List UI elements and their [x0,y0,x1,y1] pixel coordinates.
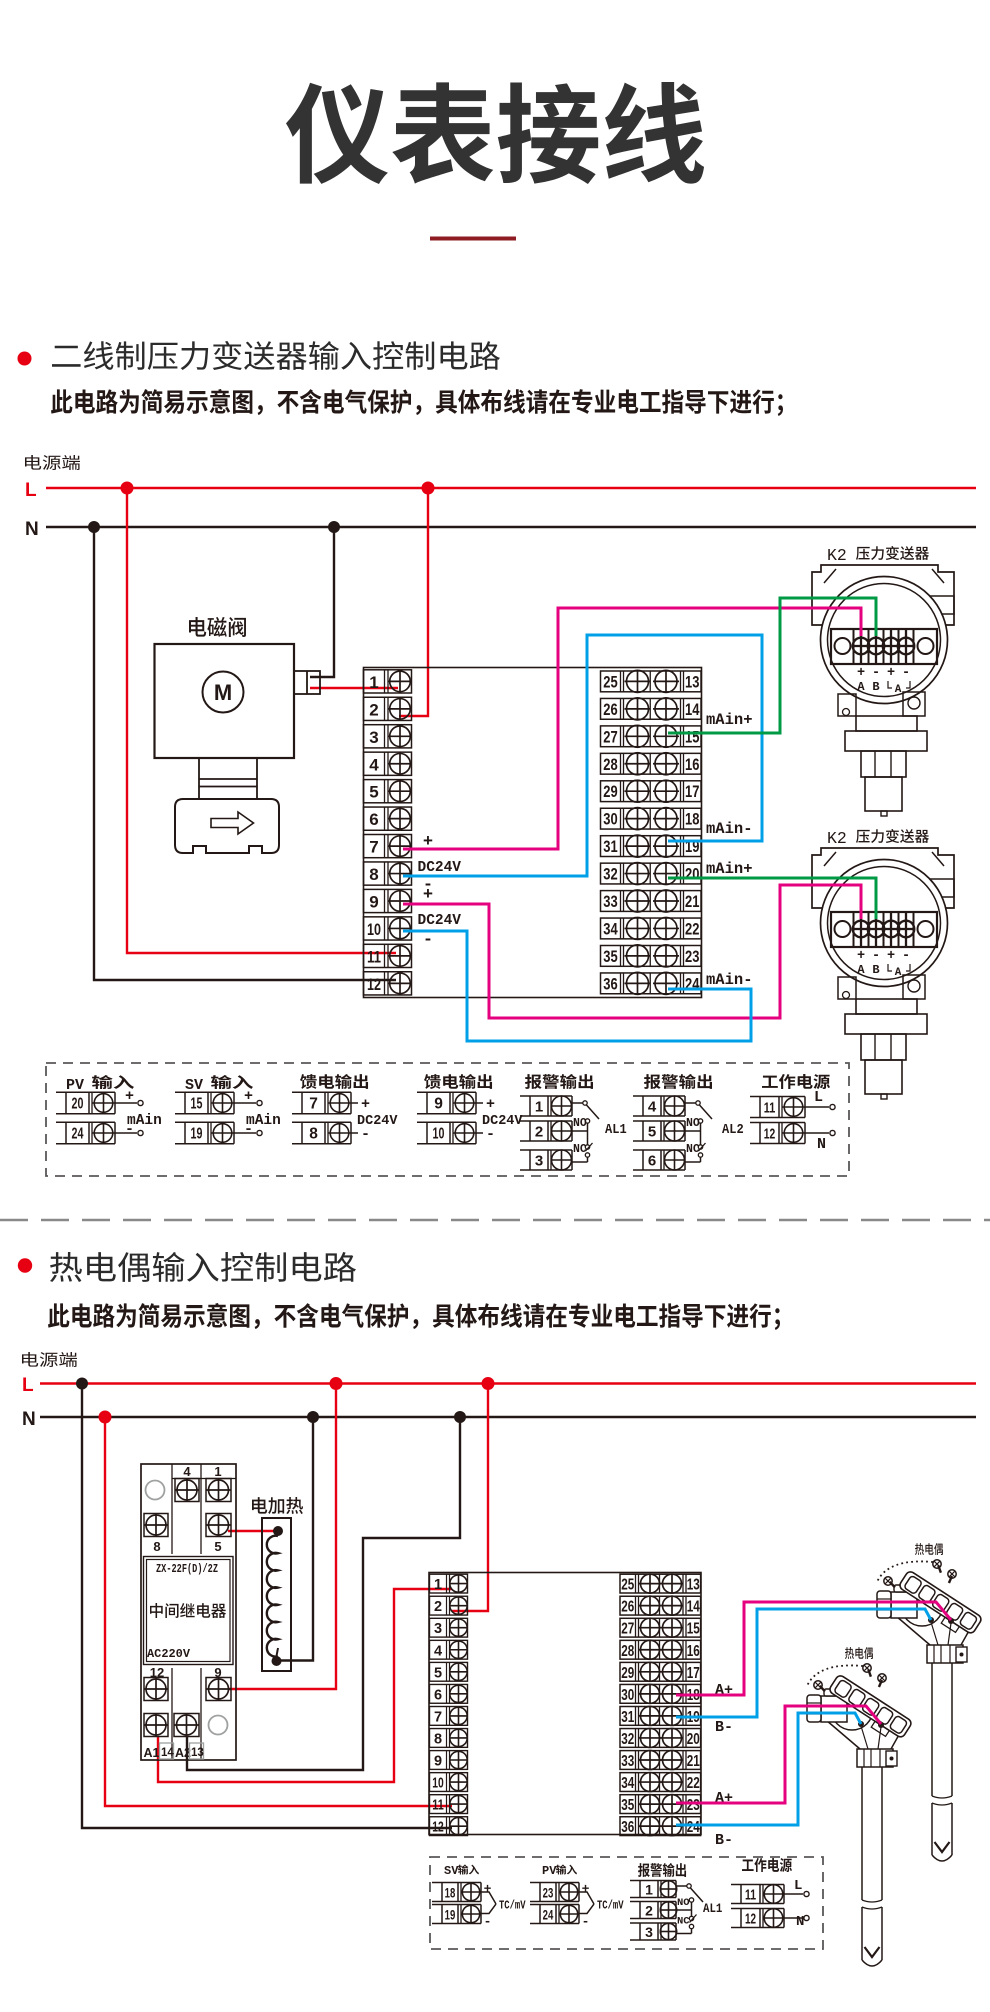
svg-text:19: 19 [191,1126,203,1143]
svg-text:mAin-: mAin- [706,820,753,838]
svg-text:15: 15 [685,727,699,746]
svg-text:12: 12 [432,1820,444,1836]
svg-text:3: 3 [535,1153,543,1170]
svg-text:mAin: mAin [127,1113,162,1129]
svg-text:4: 4 [369,755,379,774]
svg-text:N: N [796,1914,804,1930]
svg-text:5: 5 [369,783,378,802]
svg-text:SV: SV [185,1077,203,1094]
svg-text:12: 12 [764,1126,775,1143]
svg-text:23: 23 [685,947,699,966]
svg-text:22: 22 [685,919,699,938]
svg-text:3: 3 [369,728,378,747]
svg-text:20: 20 [685,865,699,884]
svg-text:21: 21 [685,892,699,911]
svg-text:NC: NC [677,1916,690,1928]
svg-text:N: N [25,519,39,540]
svg-text:33: 33 [603,892,617,911]
svg-text:34: 34 [621,1775,634,1792]
svg-text:+: + [887,666,895,681]
svg-text:29: 29 [603,782,617,801]
svg-text:A: A [857,680,865,694]
svg-text:A: A [857,963,865,977]
svg-text:13: 13 [685,672,699,691]
svg-text:1: 1 [369,673,378,692]
svg-text:4: 4 [434,1643,442,1659]
svg-text:+: + [125,1088,134,1105]
svg-text:7: 7 [434,1709,442,1725]
svg-text:NO: NO [686,1117,700,1130]
svg-text:34: 34 [603,919,618,938]
svg-text:8: 8 [309,1126,318,1143]
svg-text:10: 10 [433,1126,445,1143]
svg-text:3: 3 [645,1924,653,1940]
svg-text:32: 32 [621,1731,634,1748]
svg-text:27: 27 [621,1621,634,1638]
svg-text:13: 13 [687,1577,700,1594]
svg-text:mAin+: mAin+ [706,860,753,878]
svg-text:36: 36 [621,1819,634,1836]
svg-text:20: 20 [687,1731,700,1748]
svg-text:35: 35 [603,947,617,966]
svg-text:7: 7 [309,1096,318,1113]
svg-text:25: 25 [603,672,617,691]
svg-text:-: - [423,931,433,950]
svg-text:B: B [872,680,879,694]
svg-text:1: 1 [645,1882,653,1898]
svg-text:mAin: mAin [246,1113,281,1129]
svg-text:12: 12 [367,975,381,994]
svg-text:14: 14 [685,700,700,719]
svg-text:L: L [25,480,37,501]
svg-text:-: - [872,666,880,681]
svg-text:21: 21 [687,1753,700,1770]
svg-text:17: 17 [685,782,699,801]
svg-text:24: 24 [543,1907,554,1923]
svg-text:PV: PV [542,1864,557,1878]
svg-text:+: + [484,1882,492,1897]
svg-text:N: N [22,1409,36,1430]
svg-text:NO: NO [677,1897,690,1909]
svg-text:AL2: AL2 [722,1122,744,1138]
svg-text:B: B [872,963,879,977]
svg-text:A: A [895,684,902,696]
svg-text:6: 6 [648,1153,656,1170]
svg-text:30: 30 [603,810,617,829]
svg-text:11: 11 [432,1798,444,1814]
svg-text:26: 26 [621,1599,634,1616]
svg-text:PV: PV [66,1077,84,1094]
svg-text:M: M [214,680,232,705]
svg-text:9: 9 [369,893,378,912]
svg-text:DC24V: DC24V [482,1114,523,1129]
svg-text:L: L [22,1375,34,1396]
svg-text:+: + [857,949,865,964]
svg-text:4: 4 [183,1464,191,1479]
svg-text:11: 11 [367,947,381,966]
svg-text:23: 23 [543,1885,554,1901]
svg-text:4: 4 [648,1099,657,1116]
svg-text:1: 1 [214,1464,221,1479]
svg-text:1: 1 [535,1099,543,1116]
svg-text:L: L [794,1878,802,1894]
svg-text:DC24V: DC24V [357,1114,398,1129]
svg-text:6: 6 [434,1687,442,1703]
svg-text:8: 8 [153,1539,160,1554]
svg-text:K2: K2 [827,829,847,848]
svg-text:28: 28 [603,755,617,774]
svg-text:18: 18 [685,810,699,829]
svg-text:8: 8 [369,865,378,884]
svg-text:14: 14 [161,1747,174,1759]
svg-text:19: 19 [445,1907,456,1923]
svg-text:B-: B- [715,1719,733,1736]
svg-text:NO: NO [573,1117,587,1130]
svg-text:5: 5 [214,1539,221,1554]
svg-text:SV: SV [444,1864,459,1878]
svg-text:2: 2 [645,1903,653,1919]
svg-text:31: 31 [603,837,617,856]
svg-text:5: 5 [648,1124,656,1141]
svg-text:11: 11 [745,1888,756,1904]
svg-text:ZX-22F(D)/2Z: ZX-22F(D)/2Z [156,1563,218,1576]
svg-text:24: 24 [72,1126,84,1143]
svg-text:11: 11 [764,1100,775,1117]
svg-text:36: 36 [603,974,617,993]
svg-text:TC/mV: TC/mV [499,1899,526,1913]
svg-text:8: 8 [434,1731,442,1747]
svg-text:-: - [902,666,910,681]
svg-text:14: 14 [687,1599,700,1616]
svg-text:B-: B- [715,1832,733,1849]
svg-text:25: 25 [621,1577,634,1594]
svg-text:29: 29 [621,1665,634,1682]
svg-text:DC24V: DC24V [418,913,462,929]
svg-text:15: 15 [687,1621,700,1638]
svg-text:2: 2 [369,700,378,719]
svg-text:AL1: AL1 [703,1902,722,1916]
svg-text:17: 17 [687,1665,700,1682]
svg-text:+: + [361,1096,370,1113]
svg-text:31: 31 [621,1709,634,1726]
svg-text:3: 3 [434,1621,442,1637]
svg-text:-: - [484,1914,492,1929]
svg-text:-: - [872,949,880,964]
svg-text:32: 32 [603,865,617,884]
svg-text:-: - [582,1914,590,1929]
svg-text:A2: A2 [175,1746,191,1760]
svg-text:10: 10 [432,1776,444,1792]
svg-text:18: 18 [445,1885,456,1901]
svg-text:AL1: AL1 [605,1122,627,1138]
svg-text:7: 7 [369,838,378,857]
svg-text:+: + [486,1096,495,1113]
svg-text:2: 2 [535,1124,543,1141]
svg-text:+: + [244,1088,253,1105]
svg-text:A: A [895,967,902,979]
svg-text:TC/mV: TC/mV [597,1899,624,1913]
svg-text:-: - [902,949,910,964]
svg-text:A1: A1 [144,1746,160,1760]
svg-text:12: 12 [745,1912,756,1928]
svg-text:+: + [857,666,865,681]
svg-text:30: 30 [621,1687,634,1704]
svg-text:15: 15 [191,1096,203,1113]
svg-text:13: 13 [191,1747,204,1759]
svg-text:5: 5 [434,1665,442,1681]
svg-text:22: 22 [687,1775,700,1792]
svg-text:K2: K2 [827,546,847,565]
svg-text:2: 2 [434,1599,442,1615]
svg-text:10: 10 [367,920,381,939]
svg-text:DC24V: DC24V [418,860,462,876]
svg-text:20: 20 [72,1096,84,1113]
svg-text:6: 6 [369,810,378,829]
svg-text:24: 24 [687,1819,700,1836]
svg-text:1: 1 [434,1577,442,1593]
svg-text:L: L [814,1089,823,1106]
svg-text:27: 27 [603,727,617,746]
svg-text:16: 16 [687,1643,700,1660]
svg-text:26: 26 [603,700,617,719]
svg-text:+: + [423,886,433,905]
svg-text:9: 9 [434,1754,442,1770]
svg-text:33: 33 [621,1753,634,1770]
svg-text:23: 23 [687,1797,700,1814]
svg-text:35: 35 [621,1797,634,1814]
svg-text:AC220V: AC220V [147,1648,190,1661]
svg-text:mAin-: mAin- [706,971,753,989]
svg-text:mAin+: mAin+ [706,711,753,729]
svg-text:28: 28 [621,1643,634,1660]
svg-text:9: 9 [434,1096,443,1113]
svg-text:+: + [887,949,895,964]
svg-text:+: + [582,1882,590,1897]
svg-text:N: N [817,1136,826,1153]
svg-text:16: 16 [685,755,699,774]
